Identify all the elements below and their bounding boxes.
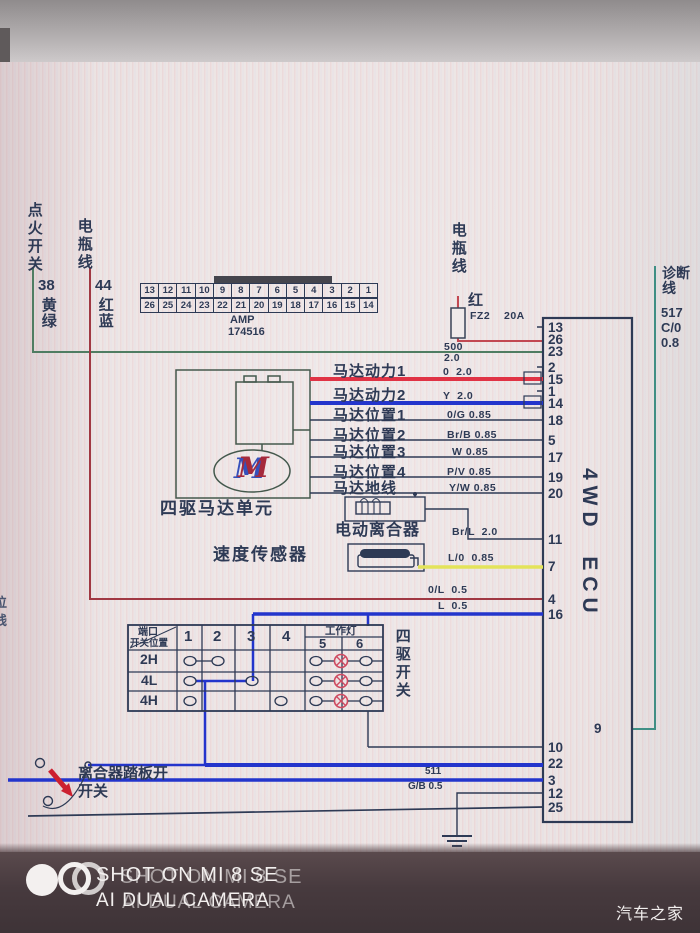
motor-row-wire-code: 0/G 0.85 xyxy=(447,410,491,421)
connector-pin: 4 xyxy=(305,283,323,298)
connector-pin: 7 xyxy=(250,283,268,298)
diagnostic-circuit-no: 517 xyxy=(661,306,683,320)
motor-row-label: 马达位置4 xyxy=(333,465,406,481)
connector-pin: 25 xyxy=(159,298,177,313)
motor-row-wire-code: 0 2.0 xyxy=(443,367,472,378)
speed-sensor-label: 速度传感器 xyxy=(213,546,308,564)
motor-m-mark: M xyxy=(238,453,269,482)
motor-row-label: 马达位置1 xyxy=(333,408,406,424)
connector-pin: 15 xyxy=(342,298,360,313)
photo-top-band xyxy=(0,0,700,62)
ecu-pin: 22 xyxy=(548,756,582,771)
watermark-line2: AI DUAL CAMERA xyxy=(96,890,270,912)
watermark-line1: SHOT ON MI 8 SE xyxy=(96,864,278,887)
clutch-wire-code: Br/L 2.0 xyxy=(452,527,498,538)
diagnostic-wire-code: C/0 xyxy=(661,321,681,335)
wire44-color: 红蓝 xyxy=(97,297,113,329)
table-corner-top: 端口 xyxy=(138,628,158,639)
table-row-4l: 4L xyxy=(141,673,157,688)
motor-row-wire-code: W 0.85 xyxy=(452,447,488,458)
ecu-pin-9: 9 xyxy=(594,721,628,736)
motor-row-wire-code: Y/W 0.85 xyxy=(449,483,496,494)
ignition-switch-label: 点火开关 xyxy=(26,202,42,274)
wire44-number: 44 xyxy=(95,278,112,294)
fourwd-switch-label: 四驱开关 xyxy=(394,628,410,700)
connector-pin: 1 xyxy=(360,283,378,298)
electric-clutch-label: 电动离合器 xyxy=(335,523,420,540)
connector-pin: 22 xyxy=(214,298,232,313)
ecu-pin: 14 xyxy=(548,396,582,411)
table-worklight-header: 工作灯 xyxy=(325,626,357,637)
motor-row-label: 马达地线 xyxy=(333,481,397,497)
circuit-500-gauge: 2.0 xyxy=(444,353,460,364)
work-lamp-row-4h xyxy=(310,695,383,708)
table-col-1: 1 xyxy=(184,629,192,645)
ecu-pin: 7 xyxy=(548,559,582,574)
pedal-switch-label-line2: 开关 xyxy=(78,784,108,800)
connector-name: AMP xyxy=(230,315,254,327)
battery-line-left-label: 电瓶线 xyxy=(76,218,92,272)
table-row-2h: 2H xyxy=(140,652,158,667)
connector-pin: 23 xyxy=(196,298,214,313)
circuit-511: 511 xyxy=(425,767,441,778)
motor-row-label: 马达动力2 xyxy=(333,388,406,404)
table-col-4: 4 xyxy=(282,629,290,645)
speed-sensor-symbol-group xyxy=(348,544,543,571)
connector-pin: 10 xyxy=(196,283,214,298)
wire38-number: 38 xyxy=(38,278,55,294)
connector-part-no: 174516 xyxy=(228,327,265,339)
connector-pin: 19 xyxy=(269,298,287,313)
ecu-pin: 16 xyxy=(548,607,582,622)
ecu-pin: 10 xyxy=(548,740,582,755)
table-col-5: 5 xyxy=(319,637,326,651)
work-lamp-row-4l xyxy=(310,675,383,688)
photo-of-wiring-diagram: 点火开关 电瓶线 38 黄绿 44 红蓝 13 12 11 10 9 8 7 6… xyxy=(0,0,700,933)
motor-row-wire-code: P/V 0.85 xyxy=(447,467,491,478)
motor-unit-label: 四驱马达单元 xyxy=(160,500,274,518)
ecu-pin: 11 xyxy=(548,532,582,547)
ecu-pin: 18 xyxy=(548,413,582,428)
work-lamp-row-2h xyxy=(310,655,383,668)
connector-pin: 8 xyxy=(232,283,250,298)
diagnostic-wire-gauge: 0.8 xyxy=(661,336,679,350)
speed-sensor-wire-code: L/0 0.85 xyxy=(448,553,494,564)
connector-pin: 24 xyxy=(177,298,195,313)
ecu-pin: 17 xyxy=(548,450,582,465)
connector-pin: 11 xyxy=(177,283,195,298)
fuse-rating: 20A xyxy=(504,311,525,322)
connector-pin: 18 xyxy=(287,298,305,313)
battery-line-right-label: 电瓶线 xyxy=(450,222,466,276)
table-col-6: 6 xyxy=(356,637,363,651)
ecu-pin: 12 xyxy=(548,786,582,801)
edge-fragment-char: 线 xyxy=(0,614,7,628)
table-row-4h: 4H xyxy=(140,693,158,708)
fuse-name: FZ2 xyxy=(470,311,490,322)
motor-row-label: 马达动力1 xyxy=(333,364,406,380)
motor-row-label: 马达位置3 xyxy=(333,445,406,461)
connector-pin: 21 xyxy=(232,298,250,313)
table-col-3: 3 xyxy=(247,629,255,645)
ecu-pin: 19 xyxy=(548,470,582,485)
wire-code-gb: G/B 0.5 xyxy=(408,782,442,793)
mid-blue-wires-group xyxy=(8,614,543,780)
connector-pin: 17 xyxy=(305,298,323,313)
connector-pin: 5 xyxy=(287,283,305,298)
connector-row-bottom: 26 25 24 23 22 21 20 19 18 17 16 15 14 xyxy=(140,298,378,313)
connector-pin: 3 xyxy=(323,283,341,298)
motor-row-label: 马达位置2 xyxy=(333,428,406,444)
connector-pin: 2 xyxy=(342,283,360,298)
connector-pin: 9 xyxy=(214,283,232,298)
edge-fragment-char: 位 xyxy=(0,596,7,610)
wire38-color: 黄绿 xyxy=(40,297,56,329)
table-col-2: 2 xyxy=(213,629,221,645)
photo-top-notch xyxy=(0,28,10,62)
connector-pin: 6 xyxy=(269,283,287,298)
ecu-pin: 20 xyxy=(548,486,582,501)
wire-code-l: L 0.5 xyxy=(438,601,468,612)
ecu-pin: 4 xyxy=(548,592,582,607)
watermark-dot-icon xyxy=(26,864,58,896)
connector-pin: 20 xyxy=(250,298,268,313)
diagnostic-line-label: 诊断线 xyxy=(662,266,700,295)
table-corner-bottom: 开关位置 xyxy=(130,639,168,649)
ecu-pin: 23 xyxy=(548,344,582,359)
connector-pin: 14 xyxy=(360,298,378,313)
watermark-brand: 汽车之家 xyxy=(616,900,684,924)
motor-row-wire-code: Y 2.0 xyxy=(443,391,473,402)
wire-code-ol: 0/L 0.5 xyxy=(428,585,467,596)
diagnostic-wire-group xyxy=(632,266,655,729)
connector-pin: 16 xyxy=(323,298,341,313)
ecu-pin: 5 xyxy=(548,433,582,448)
pedal-switch-label-line1: 离合器踏板开 xyxy=(78,766,168,782)
connector-pin: 13 xyxy=(140,283,159,298)
connector-pin: 12 xyxy=(159,283,177,298)
connector-row-top: 13 12 11 10 9 8 7 6 5 4 3 2 1 xyxy=(140,283,378,298)
connector-pin: 26 xyxy=(140,298,159,313)
battery-fuse-group xyxy=(451,296,543,341)
ecu-pin: 25 xyxy=(548,800,582,815)
connector-key-bar xyxy=(214,276,332,283)
motor-row-wire-code: Br/B 0.85 xyxy=(447,430,497,441)
wire-color-red-label: 红 xyxy=(468,293,483,309)
